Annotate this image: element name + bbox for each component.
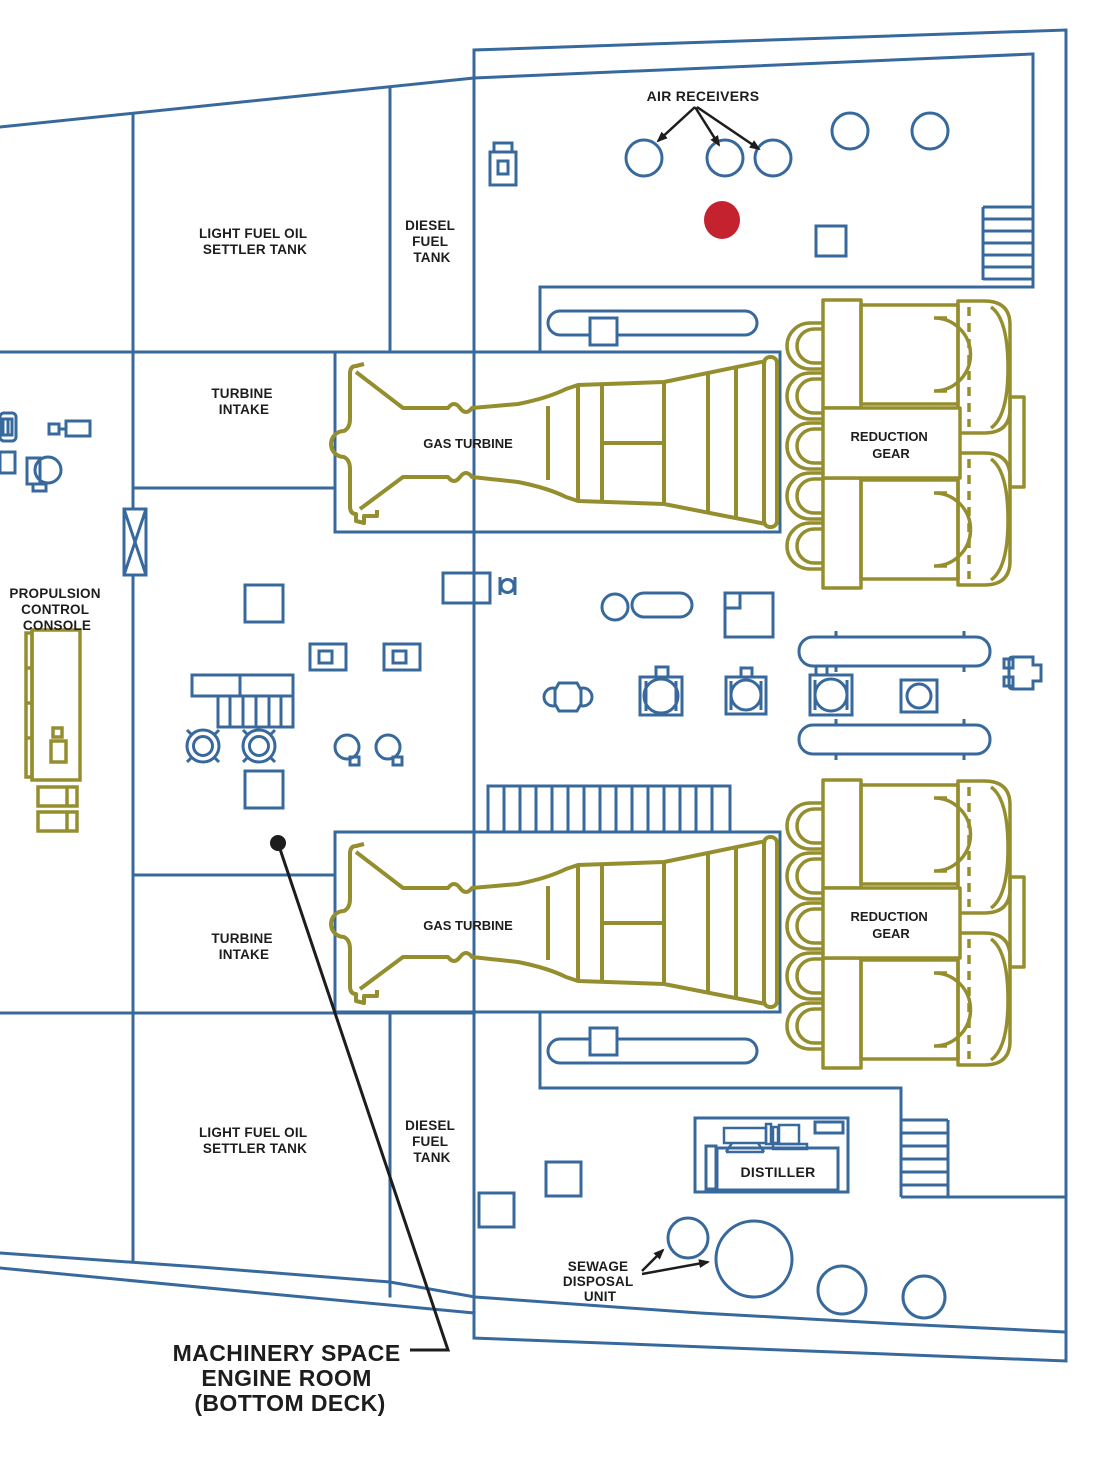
gas-turbine-forward [331, 357, 777, 527]
air-receivers-arrow-3 [697, 107, 759, 149]
air-receivers-label: AIR RECEIVERS [647, 88, 760, 104]
settler-tank-top-label: LIGHT FUEL OIL SETTLER TANK [199, 226, 311, 257]
settler-tank-bottom-label: LIGHT FUEL OIL SETTLER TANK [199, 1125, 311, 1156]
console-drawer-2 [38, 812, 77, 831]
gas-turbines [331, 357, 777, 1007]
gauge-1 [335, 735, 359, 765]
intake-grill [488, 786, 730, 832]
manifold-rack [192, 675, 293, 727]
round-valve-1 [187, 730, 219, 762]
deck-caption: MACHINERY SPACE ENGINE ROOM (BOTTOM DECK… [173, 1340, 408, 1416]
gauge-2 [376, 735, 402, 765]
inline-valve-icon [500, 577, 515, 595]
pump-box-1 [640, 667, 682, 715]
control-box-2 [384, 644, 420, 670]
equipment-stadium [632, 593, 692, 617]
turbine-enclosure-aft [335, 832, 780, 1012]
equipment-square-lower [245, 771, 283, 808]
stairs-top-right [983, 207, 1033, 280]
air-receiver-4 [832, 113, 868, 149]
console-side-strip [26, 633, 32, 777]
gas-turbine-forward-label: GAS TURBINE [423, 436, 513, 451]
caption-anchor-dot [270, 835, 286, 851]
sewage-arrow-2 [642, 1262, 708, 1274]
annotations [278, 107, 759, 1350]
stairs-bottom-right [901, 1088, 948, 1197]
control-box-1 [310, 644, 346, 670]
reduction-gear-aft [787, 780, 1024, 1068]
equipment-box [816, 226, 846, 256]
round-valve-2 [243, 730, 275, 762]
air-receiver-3 [755, 140, 791, 176]
pump-box-2 [726, 668, 766, 714]
propulsion-console-label: PROPULSION CONTROL CONSOLE [9, 586, 104, 633]
hull-bottom-inner [0, 1253, 1066, 1332]
red-position-marker [704, 201, 740, 239]
pump-box-3 [810, 666, 852, 715]
deck-plan-svg: AIR RECEIVERS LIGHT FUEL OIL SETTLER TAN… [0, 0, 1093, 1460]
distiller-label: DISTILLER [740, 1164, 815, 1180]
floor-box-2 [479, 1193, 514, 1227]
floor-box-1 [546, 1162, 581, 1196]
pump-unit-icon [27, 457, 61, 491]
sewage-tank-small [668, 1218, 708, 1258]
motor-unit-icon [1004, 657, 1041, 689]
propulsion-console-unit [26, 630, 80, 831]
slider-handle [590, 1028, 617, 1055]
bulkhead-valve-icon [124, 509, 146, 575]
twin-port-pump [544, 683, 592, 711]
fire-extinguisher-icon [490, 143, 516, 185]
console-cabinet [32, 630, 80, 780]
pump-box-4 [901, 680, 937, 712]
equipment-square-upper [245, 585, 283, 622]
reduction-gears [787, 300, 1024, 1068]
sewage-and-misc [479, 1162, 945, 1318]
heat-exchanger-tank-2 [799, 719, 990, 760]
console-switch-body [51, 741, 66, 762]
air-receivers-arrow-1 [658, 107, 695, 141]
console-drawer-1 [38, 787, 77, 806]
distiller-strip [706, 1146, 716, 1189]
notched-cabinet [725, 593, 773, 637]
sewage-arrow-1 [642, 1250, 663, 1271]
distiller-vent [815, 1122, 843, 1133]
sewage-tank-large [716, 1221, 792, 1297]
diesel-tank-top-label: DIESEL FUEL TANK [405, 218, 459, 265]
panel-icon [0, 413, 16, 441]
engine-room-deck-plan: AIR RECEIVERS LIGHT FUEL OIL SETTLER TAN… [0, 0, 1093, 1460]
gas-turbine-aft-label: GAS TURBINE [423, 918, 513, 933]
small-device-icon [49, 421, 90, 436]
reduction-gear-forward [787, 300, 1024, 588]
console-switch-head [53, 728, 62, 737]
equipment-rect [443, 573, 490, 603]
turbine-intake-aft-label: TURBINE INTAKE [211, 931, 276, 962]
wall-box [0, 452, 15, 473]
distiller-unit [695, 1118, 848, 1192]
slider-handle [590, 318, 617, 345]
air-receiver-1 [626, 140, 662, 176]
turbine-intake-forward-label: TURBINE INTAKE [211, 386, 276, 417]
diesel-tank-bottom-label: DIESEL FUEL TANK [405, 1118, 459, 1165]
aux-tank-1 [818, 1266, 866, 1314]
rail-slider-top [548, 311, 757, 345]
rail-slider-bottom [548, 1028, 757, 1063]
hull-bottom-outer [0, 1268, 474, 1313]
aux-tank-2 [903, 1276, 945, 1318]
air-receiver-5 [912, 113, 948, 149]
slider-rail [548, 311, 757, 335]
air-receiver-2 [707, 140, 743, 176]
upper-deck-line [0, 54, 1033, 127]
heat-exchanger-tank-1 [799, 631, 990, 672]
slider-rail [548, 1039, 757, 1063]
equipment-circle [602, 594, 628, 620]
sewage-disposal-label: SEWAGE DISPOSAL UNIT [563, 1259, 637, 1304]
turbine-enclosure-forward [335, 352, 780, 532]
stairs [901, 207, 1033, 1197]
gas-turbine-aft [331, 837, 777, 1007]
